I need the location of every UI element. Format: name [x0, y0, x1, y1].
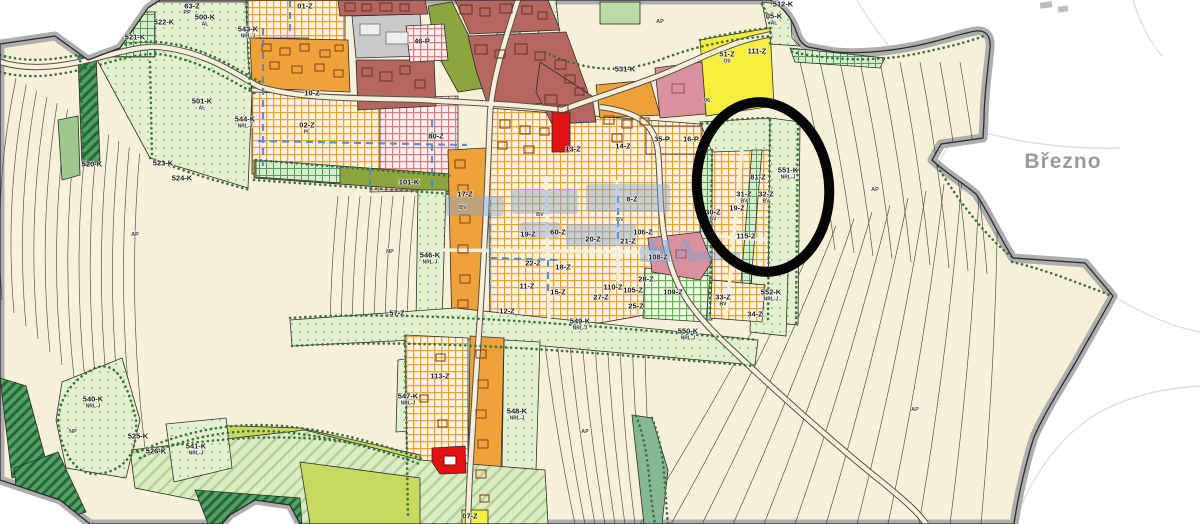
zone-label: 19-Z — [520, 230, 536, 239]
area-code-label: BV — [459, 205, 467, 211]
zone-label: 33-Z — [715, 293, 731, 302]
area-code-label: 06 — [704, 98, 710, 104]
zone-label: 20-Z — [585, 235, 601, 244]
zone-label: 51-Z — [719, 50, 735, 59]
zone-sublabel: NRL-J — [241, 34, 256, 40]
zone-label: 113-Z — [430, 372, 450, 381]
zone-sublabel: NRL-J — [510, 416, 525, 422]
zone-label: 551-K — [778, 166, 799, 175]
zone-label: 109-Z — [663, 288, 683, 297]
zone-label: 500-K — [195, 13, 216, 22]
zone-sublabel: NRL-J — [573, 326, 588, 332]
building-footprint — [444, 456, 456, 465]
zone-label: 540-K — [83, 395, 104, 404]
zone-label: 31-Z — [736, 190, 752, 199]
zone-sublabel: AL — [771, 21, 778, 27]
zone-rose-village — [655, 62, 706, 118]
zone-sublabel: OS — [723, 59, 731, 65]
zone-sublabel: PL — [304, 130, 310, 136]
zone-label: 46-P — [414, 37, 430, 46]
zone-label: 541-K — [186, 442, 207, 451]
area-code-label: AP — [871, 187, 879, 193]
zone-green-village2 — [600, 2, 640, 24]
map-viewport[interactable]: HA 500-KAL543-KNRL-J521-K522-K63-Z01-Z50… — [0, 0, 1200, 524]
zone-label: 21-Z — [620, 237, 636, 246]
zone-label: 28-Z — [638, 275, 654, 284]
zone-label: 30-Z — [705, 208, 721, 217]
zone-label: 522-K — [154, 18, 175, 27]
zone-sublabel: NRL-J — [764, 297, 779, 303]
zone-label: 108-Z — [648, 253, 668, 262]
area-code-label: PP — [183, 10, 191, 16]
zone-label: 544-K — [235, 115, 256, 124]
zone-label: 13-Z — [565, 145, 581, 154]
zone-label: 115-Z — [736, 232, 756, 241]
area-code-label: AP — [911, 407, 919, 413]
zone-label: 524-K — [172, 174, 193, 183]
zone-label: 22-Z — [525, 259, 541, 268]
zone-label: 512-K — [773, 0, 794, 9]
area-code-label: AP — [581, 429, 589, 435]
zone-label: 552-K — [761, 288, 782, 297]
zone-label: 07-Z — [462, 512, 478, 521]
zone-label: 18-Z — [555, 263, 571, 272]
zone-sublabel: NRL-J — [86, 404, 101, 410]
zone-sublabel: NRL-J — [423, 260, 438, 266]
zone-label: 520-K — [82, 160, 103, 169]
area-code-label: AP — [131, 232, 139, 238]
place-label-brezno: Březno — [1024, 150, 1101, 173]
zone-label: 526-K — [146, 447, 167, 456]
zoning-map-canvas[interactable]: HA 500-KAL543-KNRL-J521-K522-K63-Z01-Z50… — [0, 0, 1200, 524]
zone-green-nw — [58, 116, 80, 180]
zone-label: 8-Z — [626, 195, 638, 204]
zone-sublabel: NRL-J — [681, 336, 696, 342]
zone-label: 10-Z — [304, 89, 320, 98]
area-code-label: BV — [536, 212, 544, 218]
zone-label: 57-Z — [389, 309, 405, 318]
building-footprint — [360, 24, 380, 35]
zone-label: 01-Z — [297, 2, 313, 11]
zone-label: 34-Z — [747, 310, 763, 319]
zone-brick-north — [338, 0, 428, 16]
zone-label: 32-Z — [758, 190, 774, 199]
zone-label: 05-K — [766, 12, 783, 21]
zone-label: 105-Z — [623, 286, 643, 295]
zone-label: 543-K — [238, 25, 259, 34]
zone-label: 111-Z — [748, 47, 767, 56]
area-code-label: NP — [386, 249, 394, 255]
zone-sublabel: NRL-J — [401, 401, 416, 407]
zone-label: 80-Z — [428, 132, 444, 141]
area-code-label: BV — [616, 217, 624, 223]
zone-label: 110-Z — [603, 283, 623, 292]
zone-sublabel: NRL-J — [189, 451, 204, 457]
zone-label: 547-K — [398, 392, 419, 401]
zone-label: 60-Z — [550, 228, 566, 237]
zone-label: 12-Z — [499, 307, 515, 316]
zone-sublabel: AL — [199, 106, 206, 112]
zone-label: 549-K — [570, 317, 591, 326]
zone-sublabel: BV — [763, 199, 771, 205]
zone-label: 19-Z — [729, 204, 745, 213]
zone-label: 106-Z — [633, 228, 653, 237]
zone-label: 15-Z — [550, 288, 566, 297]
zone-label: 11-Z — [519, 282, 534, 291]
zone-green-548K — [502, 340, 540, 470]
zone-sublabel: NRL-J — [781, 175, 796, 181]
zone-label: 16-P — [683, 135, 699, 144]
zone-label: 14-Z — [615, 142, 631, 151]
zone-label: 101-K — [399, 178, 420, 187]
zone-label: 17-Z — [457, 190, 473, 199]
zone-label: 531-K — [615, 65, 636, 74]
zone-label: 521-K — [125, 33, 146, 42]
building-footprint — [386, 32, 408, 44]
area-code-label: AP — [656, 19, 664, 25]
zone-label: 548-K — [507, 407, 528, 416]
zone-label: 02-Z — [299, 121, 315, 130]
zone-label: 81-Z — [750, 173, 766, 182]
zone-sublabel: NRL-J — [238, 124, 253, 130]
watermark-letters: HA — [647, 233, 698, 270]
zone-sublabel: AL — [202, 22, 209, 28]
zone-label: 550-K — [678, 327, 699, 336]
zone-label: 525-K — [128, 432, 149, 441]
zone-label: 546-K — [420, 251, 441, 260]
zone-label: 35-P — [654, 135, 670, 144]
zone-sublabel: BV — [720, 302, 728, 308]
zone-label: 27-Z — [593, 293, 609, 302]
area-code-label: NP — [69, 429, 77, 435]
zone-sublabel: BV — [710, 217, 718, 223]
zone-label: 501-K — [192, 97, 213, 106]
zone-label: 523-K — [153, 159, 174, 168]
zone-label: 25-Z — [628, 302, 644, 311]
